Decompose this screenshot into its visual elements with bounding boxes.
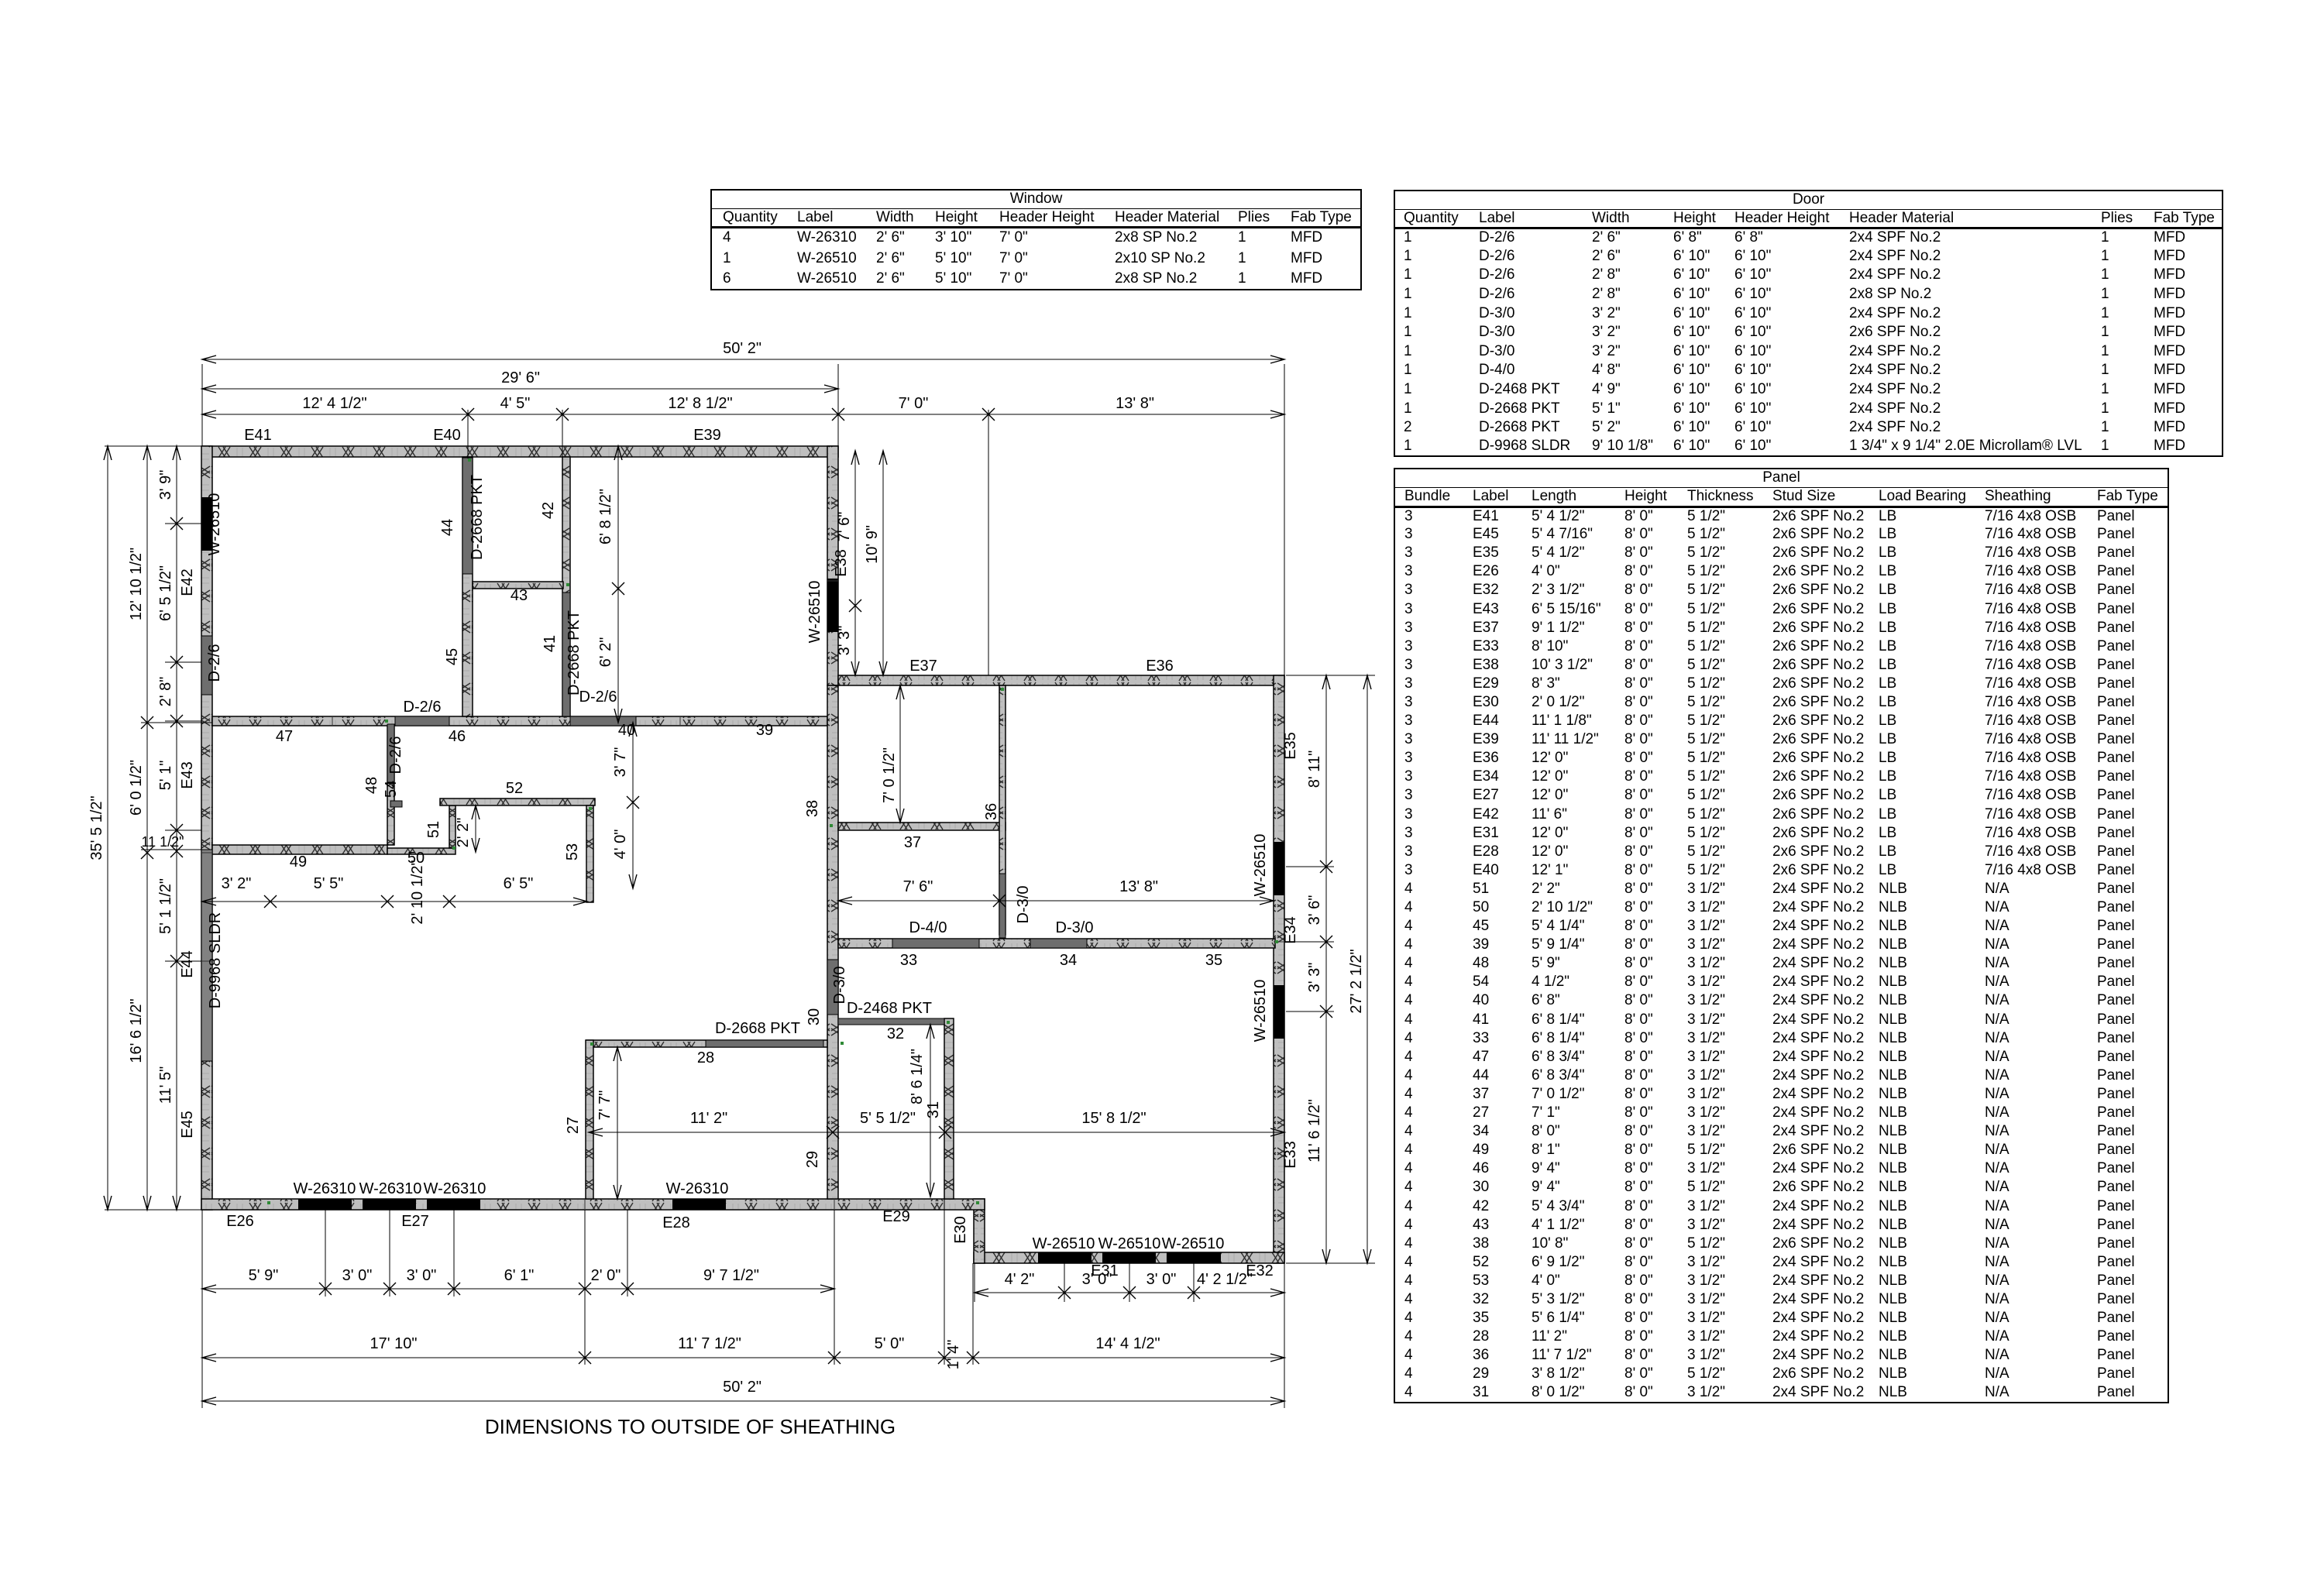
svg-text:41: 41 <box>541 635 559 652</box>
svg-text:D-2668 PKT: D-2668 PKT <box>469 475 486 560</box>
svg-text:3' 0": 3' 0" <box>407 1267 437 1284</box>
svg-text:3' 7": 3' 7" <box>612 747 629 778</box>
svg-text:D-2/6: D-2/6 <box>206 644 223 682</box>
svg-text:E37: E37 <box>909 658 937 675</box>
svg-text:35: 35 <box>1205 952 1222 969</box>
svg-text:2' 0": 2' 0" <box>591 1267 621 1284</box>
svg-text:11' 5": 11' 5" <box>157 1066 174 1104</box>
svg-text:E44: E44 <box>179 950 196 978</box>
svg-text:52: 52 <box>506 780 523 797</box>
svg-text:3' 3": 3' 3" <box>1306 963 1323 993</box>
svg-text:6' 8 1/2": 6' 8 1/2" <box>597 489 614 544</box>
svg-text:E32: E32 <box>1246 1262 1274 1279</box>
svg-text:6' 5": 6' 5" <box>504 875 534 892</box>
svg-text:13' 8": 13' 8" <box>1119 878 1158 895</box>
svg-text:E35: E35 <box>1282 732 1299 760</box>
svg-text:E34: E34 <box>1282 916 1299 944</box>
svg-text:W-26510: W-26510 <box>1098 1235 1161 1252</box>
svg-text:D-3/0: D-3/0 <box>831 967 848 1005</box>
svg-text:50' 2": 50' 2" <box>723 1379 761 1396</box>
svg-text:10' 9": 10' 9" <box>864 525 881 564</box>
svg-text:37: 37 <box>904 834 921 851</box>
svg-text:E36: E36 <box>1146 658 1174 675</box>
svg-text:E29: E29 <box>882 1208 910 1225</box>
svg-text:D-3/0: D-3/0 <box>1015 886 1032 924</box>
svg-text:46: 46 <box>449 728 466 745</box>
svg-text:6' 0 1/2": 6' 0 1/2" <box>128 760 145 816</box>
svg-text:12' 10 1/2": 12' 10 1/2" <box>128 548 145 620</box>
svg-text:6' 1": 6' 1" <box>504 1267 535 1284</box>
svg-text:54: 54 <box>383 781 400 798</box>
svg-text:2' 8": 2' 8" <box>157 677 174 707</box>
svg-text:42: 42 <box>540 502 557 519</box>
svg-text:W-26510: W-26510 <box>1162 1235 1225 1252</box>
svg-text:D-4/0: D-4/0 <box>909 919 947 936</box>
svg-text:11' 7 1/2": 11' 7 1/2" <box>678 1335 741 1352</box>
svg-text:E30: E30 <box>952 1216 969 1244</box>
svg-text:5' 5 1/2": 5' 5 1/2" <box>860 1110 916 1127</box>
svg-text:29' 6": 29' 6" <box>501 369 540 386</box>
svg-text:3' 2": 3' 2" <box>222 875 252 892</box>
svg-text:6' 2": 6' 2" <box>597 637 614 668</box>
svg-text:50: 50 <box>407 850 425 867</box>
svg-text:3' 3": 3' 3" <box>836 626 853 656</box>
svg-text:4' 2": 4' 2" <box>1005 1271 1035 1288</box>
svg-text:11 1/2": 11 1/2" <box>141 834 184 850</box>
svg-text:53: 53 <box>564 843 581 860</box>
svg-text:51: 51 <box>425 821 442 838</box>
svg-text:8' 6 1/4": 8' 6 1/4" <box>909 1049 926 1104</box>
svg-text:31: 31 <box>925 1101 942 1118</box>
svg-text:E43: E43 <box>179 761 196 789</box>
svg-text:7' 6": 7' 6" <box>836 512 853 542</box>
svg-text:E41: E41 <box>244 427 272 444</box>
svg-text:40: 40 <box>618 722 635 739</box>
svg-text:3' 0": 3' 0" <box>1147 1271 1177 1288</box>
svg-text:6' 5 1/2": 6' 5 1/2" <box>157 565 174 621</box>
svg-text:W-26510: W-26510 <box>1252 980 1269 1042</box>
svg-text:9' 7 1/2": 9' 7 1/2" <box>703 1267 759 1284</box>
svg-text:7' 0 1/2": 7' 0 1/2" <box>881 747 898 803</box>
svg-text:W-26510: W-26510 <box>1252 834 1269 897</box>
svg-text:7' 0": 7' 0" <box>899 395 929 412</box>
svg-text:D-2668 PKT: D-2668 PKT <box>715 1020 800 1037</box>
svg-text:3' 0": 3' 0" <box>342 1267 373 1284</box>
svg-text:4' 5": 4' 5" <box>500 395 531 412</box>
svg-text:50' 2": 50' 2" <box>723 340 761 357</box>
svg-text:5' 9": 5' 9" <box>249 1267 279 1284</box>
svg-text:D-2/6: D-2/6 <box>387 737 404 774</box>
svg-text:W-26310: W-26310 <box>424 1180 486 1197</box>
svg-text:49: 49 <box>290 853 307 871</box>
svg-text:E27: E27 <box>401 1213 429 1230</box>
svg-text:W-26510: W-26510 <box>206 493 223 556</box>
svg-text:W-26310: W-26310 <box>359 1180 422 1197</box>
svg-text:47: 47 <box>276 728 293 745</box>
svg-text:11' 2": 11' 2" <box>690 1110 727 1127</box>
svg-text:27' 2 1/2": 27' 2 1/2" <box>1348 949 1365 1013</box>
svg-text:4' 0": 4' 0" <box>612 829 629 860</box>
svg-text:17' 10": 17' 10" <box>370 1335 418 1352</box>
svg-text:D-3/0: D-3/0 <box>1056 919 1094 936</box>
svg-text:11' 6 1/2": 11' 6 1/2" <box>1306 1099 1323 1163</box>
svg-text:8' 11": 8' 11" <box>1306 750 1323 788</box>
svg-text:E42: E42 <box>179 568 196 596</box>
svg-text:1' 4": 1' 4" <box>945 1340 962 1370</box>
svg-text:29: 29 <box>804 1151 821 1168</box>
svg-text:E40: E40 <box>433 427 461 444</box>
svg-text:3' 6": 3' 6" <box>1306 895 1323 926</box>
svg-text:E33: E33 <box>1282 1141 1299 1169</box>
svg-text:5' 5": 5' 5" <box>314 875 344 892</box>
svg-text:33: 33 <box>900 952 917 969</box>
svg-text:48: 48 <box>363 777 380 794</box>
svg-text:E38: E38 <box>833 549 850 577</box>
svg-text:D-2/6: D-2/6 <box>404 699 442 716</box>
svg-text:7' 7": 7' 7" <box>596 1090 614 1121</box>
svg-text:16' 6 1/2": 16' 6 1/2" <box>128 998 145 1063</box>
svg-text:2' 2": 2' 2" <box>455 818 472 848</box>
svg-text:44: 44 <box>439 519 456 536</box>
svg-text:45: 45 <box>444 648 461 665</box>
svg-text:E28: E28 <box>662 1214 690 1231</box>
svg-text:43: 43 <box>511 587 528 604</box>
svg-text:W-26310: W-26310 <box>294 1180 356 1197</box>
svg-text:27: 27 <box>565 1117 582 1134</box>
svg-text:D-2668 PKT: D-2668 PKT <box>566 610 583 695</box>
svg-text:13' 8": 13' 8" <box>1116 395 1154 412</box>
svg-text:35' 5 1/2": 35' 5 1/2" <box>88 795 105 860</box>
svg-text:5' 0": 5' 0" <box>875 1335 905 1352</box>
svg-text:2' 10 1/2": 2' 10 1/2" <box>409 860 426 924</box>
svg-text:W-26310: W-26310 <box>666 1180 729 1197</box>
svg-text:34: 34 <box>1060 952 1077 969</box>
svg-text:DIMENSIONS TO OUTSIDE OF SHEAT: DIMENSIONS TO OUTSIDE OF SHEATHING <box>485 1415 896 1438</box>
svg-text:E45: E45 <box>179 1111 196 1139</box>
svg-text:W-26510: W-26510 <box>1033 1235 1095 1252</box>
svg-text:14' 4 1/2": 14' 4 1/2" <box>1095 1335 1160 1352</box>
svg-text:D-9968 SLDR: D-9968 SLDR <box>207 912 224 1009</box>
svg-text:32: 32 <box>887 1025 904 1042</box>
svg-text:4' 2 1/2": 4' 2 1/2" <box>1197 1271 1253 1288</box>
svg-text:E31: E31 <box>1091 1262 1119 1279</box>
svg-text:E39: E39 <box>693 427 721 444</box>
svg-text:D-2/6: D-2/6 <box>579 689 617 706</box>
svg-text:39: 39 <box>756 722 773 739</box>
svg-text:5' 1 1/2": 5' 1 1/2" <box>157 878 174 934</box>
svg-text:E26: E26 <box>226 1213 254 1230</box>
svg-text:12' 8 1/2": 12' 8 1/2" <box>668 395 732 412</box>
svg-text:7' 6": 7' 6" <box>903 878 933 895</box>
svg-text:30: 30 <box>806 1008 823 1025</box>
svg-text:12' 4 1/2": 12' 4 1/2" <box>302 395 366 412</box>
svg-text:3' 9": 3' 9" <box>157 470 174 500</box>
svg-text:15' 8 1/2": 15' 8 1/2" <box>1081 1110 1146 1127</box>
svg-text:W-26510: W-26510 <box>806 581 823 644</box>
svg-text:5' 1": 5' 1" <box>157 761 174 791</box>
svg-text:28: 28 <box>697 1049 714 1066</box>
svg-text:38: 38 <box>804 800 821 817</box>
svg-text:36: 36 <box>983 803 1000 820</box>
svg-text:D-2468 PKT: D-2468 PKT <box>847 1000 932 1017</box>
